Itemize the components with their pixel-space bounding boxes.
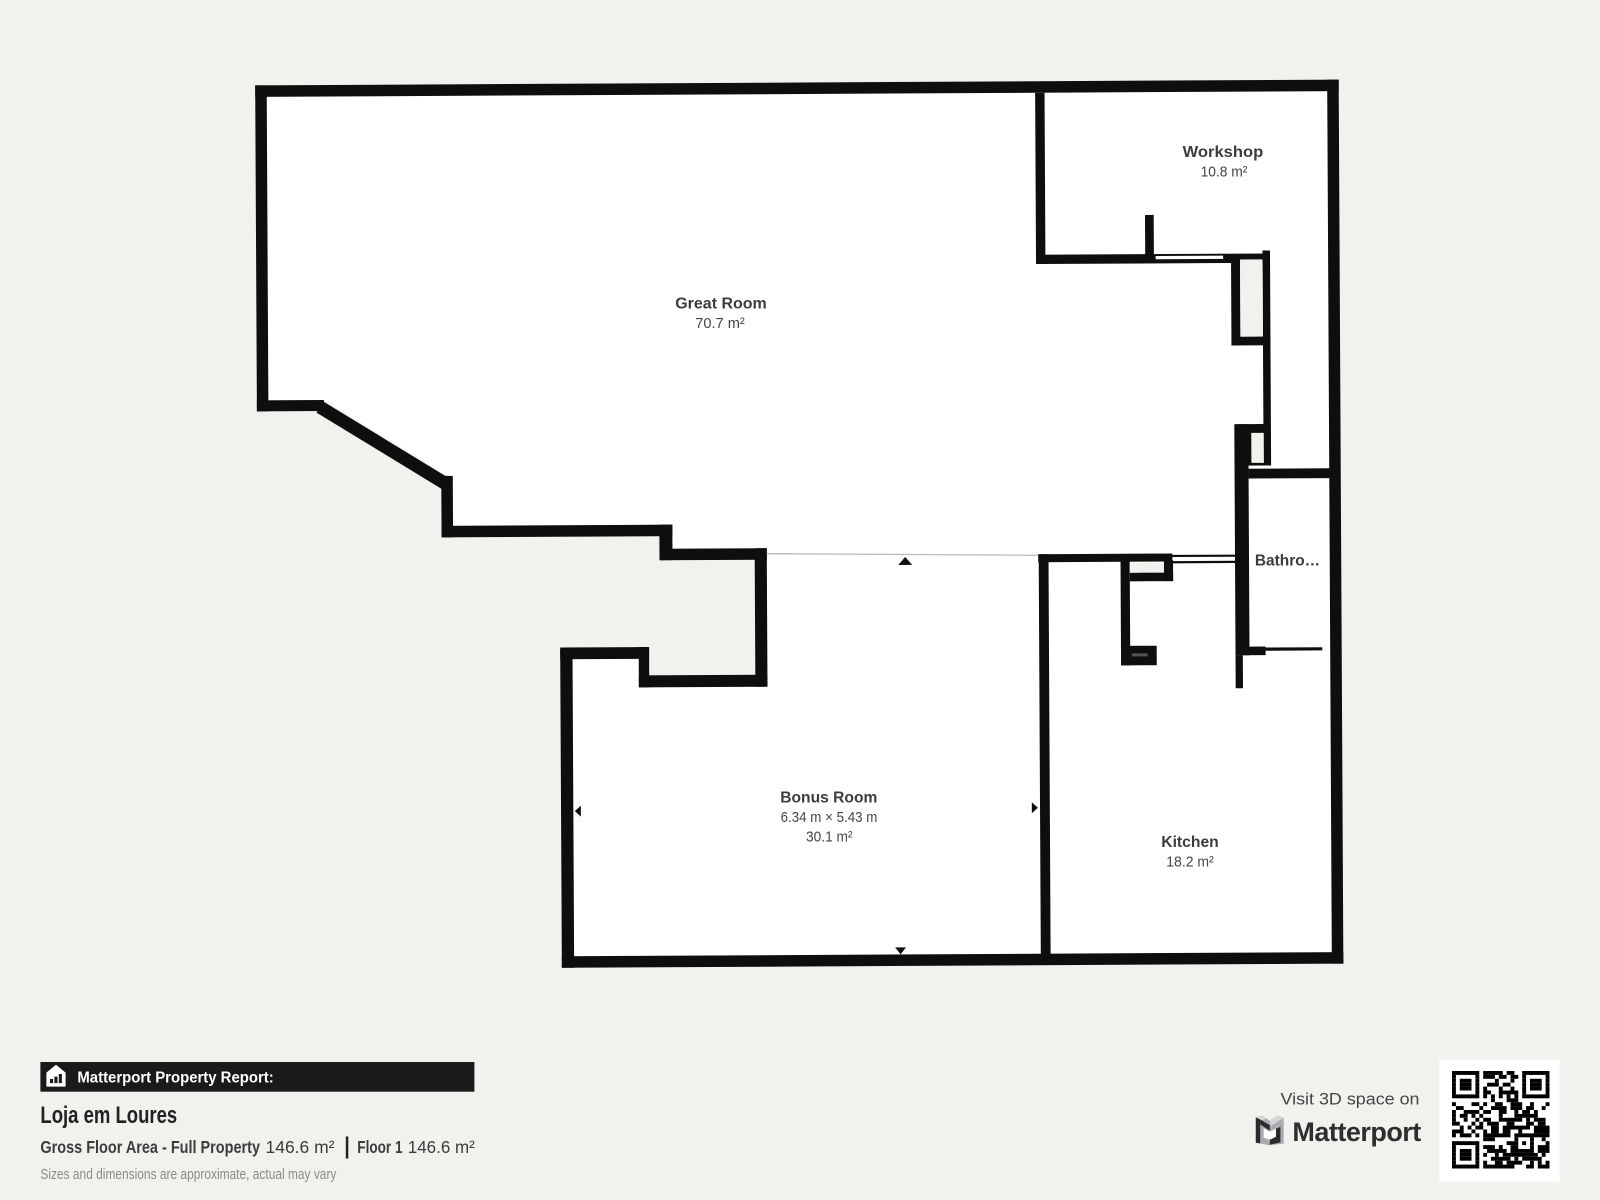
svg-text:Kitchen: Kitchen [1161,834,1219,851]
svg-text:Loja em Loures: Loja em Loures [40,1102,177,1129]
svg-text:30.1 m²: 30.1 m² [806,829,853,846]
svg-text:Floor 1: Floor 1 [357,1137,402,1157]
svg-text:146.6 m²: 146.6 m² [408,1137,475,1157]
svg-text:6.34 m × 5.43 m: 6.34 m × 5.43 m [781,809,878,826]
svg-text:Matterport: Matterport [1292,1117,1421,1147]
svg-text:18.2 m²: 18.2 m² [1166,854,1214,871]
svg-text:Visit 3D space on: Visit 3D space on [1281,1091,1420,1109]
svg-text:Sizes and dimensions are appro: Sizes and dimensions are approximate, ac… [40,1166,336,1183]
svg-text:10.8 m²: 10.8 m² [1201,164,1248,181]
svg-text:Workshop: Workshop [1183,144,1264,161]
svg-text:146.6 m²: 146.6 m² [266,1137,335,1157]
svg-text:Great Room: Great Room [675,296,767,313]
svg-text:Bonus Room: Bonus Room [780,790,877,807]
svg-text:Gross Floor Area - Full Proper: Gross Floor Area - Full Property [40,1137,260,1157]
svg-text:Matterport Property Report:: Matterport Property Report: [77,1070,273,1087]
svg-text:Bathro…: Bathro… [1255,553,1320,570]
svg-text:70.7 m²: 70.7 m² [695,315,745,332]
